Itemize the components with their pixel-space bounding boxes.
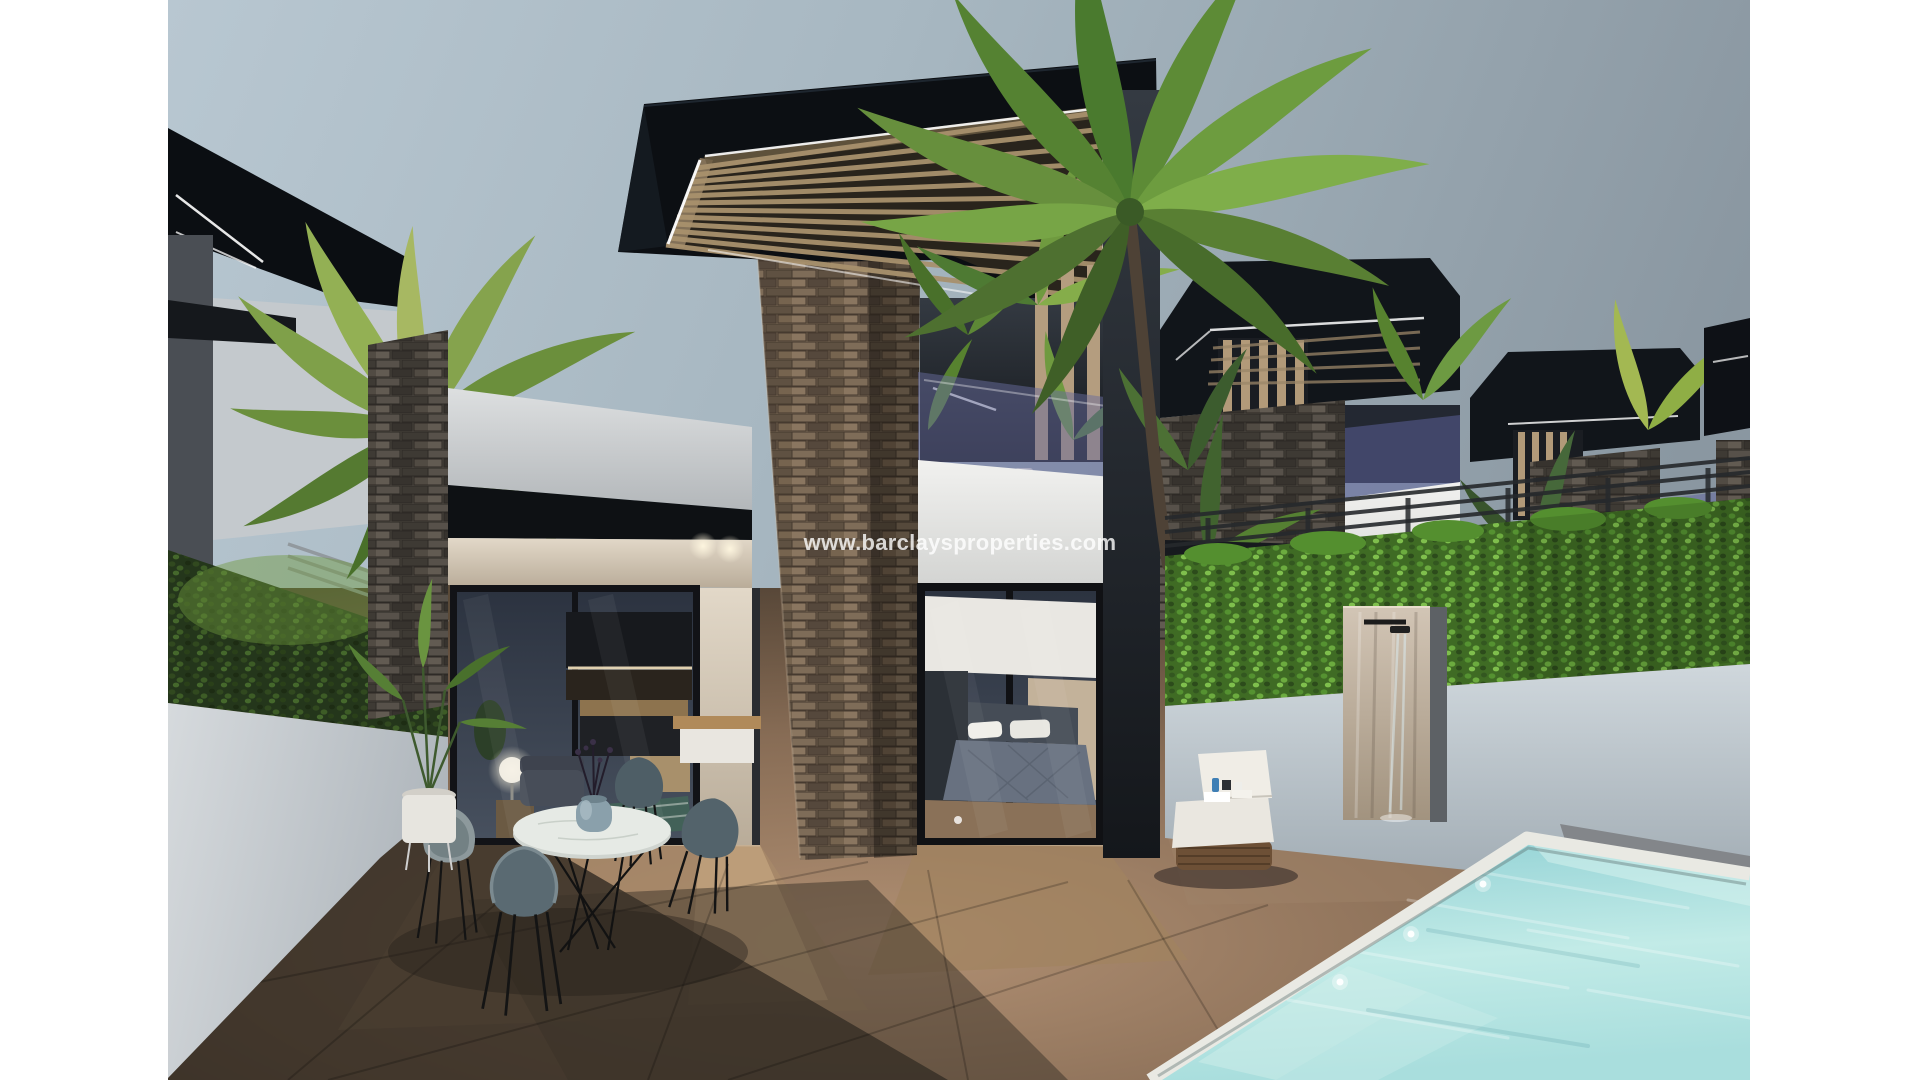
screenshot-canvas: www.barclaysproperties.com (0, 0, 1920, 1080)
villa-photo: www.barclaysproperties.com (168, 0, 1750, 1080)
left-margin (0, 0, 168, 1080)
outdoor-shower (1343, 607, 1447, 822)
right-margin (1750, 0, 1920, 1080)
watermark-text: www.barclaysproperties.com (804, 530, 1117, 556)
bedroom-glass-doors (917, 583, 1103, 845)
